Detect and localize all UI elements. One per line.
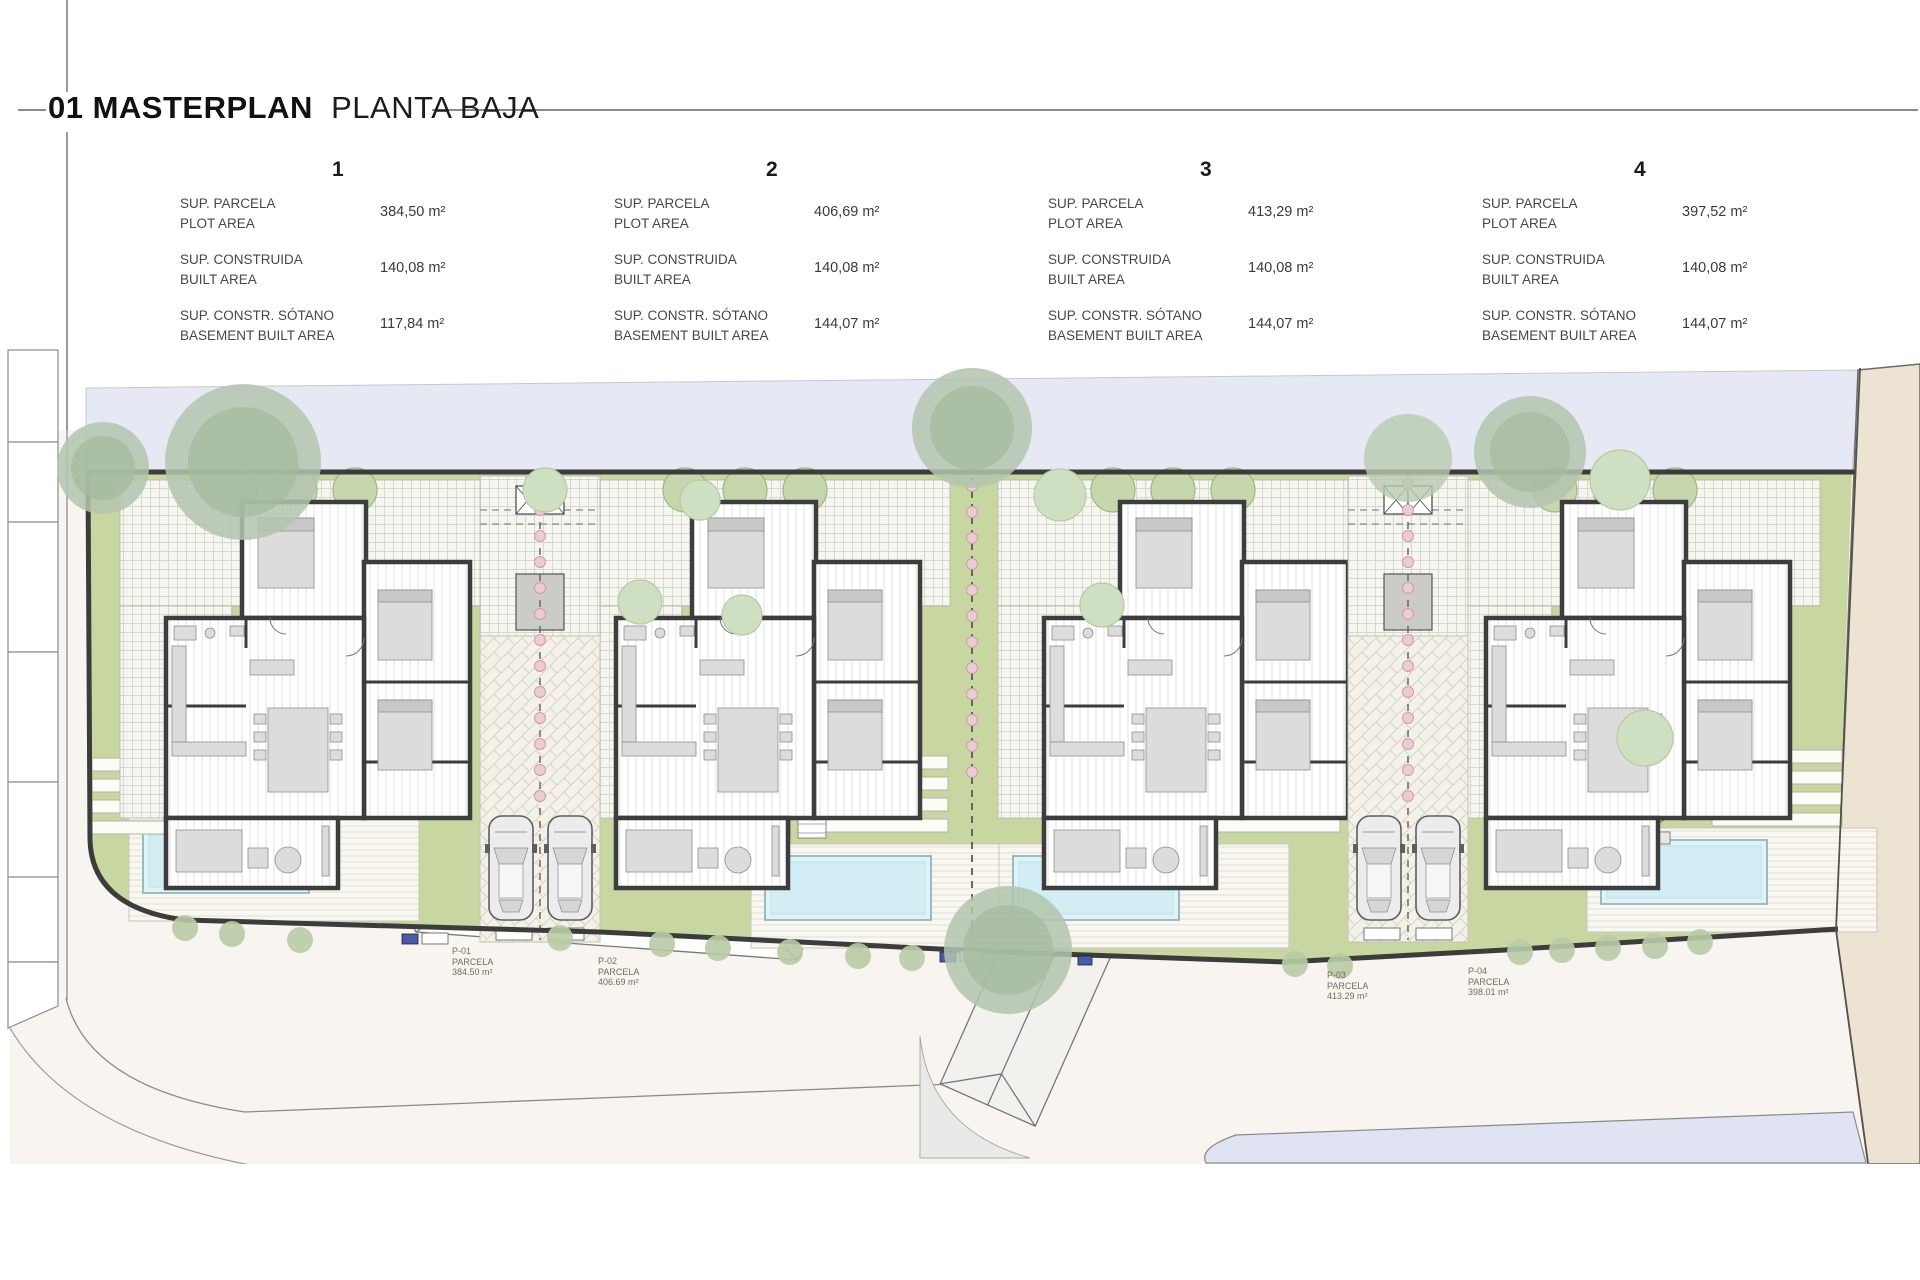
row-value: 140,08 m² xyxy=(814,260,879,276)
row-label-en: BUILT AREA xyxy=(614,270,737,290)
parcel-area: 384.50 m² xyxy=(452,967,493,978)
row-label-es: SUP. CONSTRUIDA xyxy=(1048,250,1171,270)
parcel-area: 406.69 m² xyxy=(598,977,639,988)
row-label-en: BUILT AREA xyxy=(1482,270,1605,290)
title-subtitle: PLANTA BAJA xyxy=(322,90,539,125)
plot-number: 4 xyxy=(1634,158,1646,182)
plot-number: 2 xyxy=(766,158,778,182)
row-label-es: SUP. CONSTRUIDA xyxy=(614,250,737,270)
driveway-plots-1-2 xyxy=(480,470,600,942)
row-label-en: BUILT AREA xyxy=(180,270,303,290)
left-guide-line-top xyxy=(66,0,68,92)
driveway-plots-3-4 xyxy=(1348,470,1468,942)
parcel-tag-2: P-02 PARCELA 406.69 m² xyxy=(598,956,639,988)
title-rule-left xyxy=(18,109,46,111)
parcel-area: 398.01 m² xyxy=(1468,987,1509,998)
parcel-tag-3: P-03 PARCELA 413.29 m² xyxy=(1327,970,1368,1002)
row-label-es: SUP. PARCELA xyxy=(180,194,276,214)
row-label-en: PLOT AREA xyxy=(614,214,710,234)
row-value: 140,08 m² xyxy=(1682,260,1747,276)
row-label-es: SUP. PARCELA xyxy=(614,194,710,214)
row-value: 140,08 m² xyxy=(1248,260,1313,276)
bottom-margin xyxy=(0,1164,1920,1280)
plot-number: 1 xyxy=(332,158,344,182)
row-label-es: SUP. CONSTRUIDA xyxy=(1482,250,1605,270)
row-label-en: BUILT AREA xyxy=(1048,270,1171,290)
plot-row: SUP. PARCELAPLOT AREA 397,52 m² xyxy=(1482,194,1782,244)
row-value: 384,50 m² xyxy=(380,204,445,220)
parcel-tag-4: P-04 PARCELA 398.01 m² xyxy=(1468,966,1509,998)
plot-row: SUP. PARCELAPLOT AREA 406,69 m² xyxy=(614,194,914,244)
parcel-code: P-04 xyxy=(1468,966,1509,977)
row-label-es: SUP. PARCELA xyxy=(1482,194,1578,214)
parcel-name: PARCELA xyxy=(1327,981,1368,992)
plot-row: SUP. CONSTRUIDABUILT AREA 140,08 m² xyxy=(180,250,480,300)
row-value: 397,52 m² xyxy=(1682,204,1747,220)
row-label-en: PLOT AREA xyxy=(1482,214,1578,234)
masterplan-drawing xyxy=(0,310,1920,1280)
title-rule-right xyxy=(432,109,1918,111)
plot-row: SUP. PARCELAPLOT AREA 413,29 m² xyxy=(1048,194,1348,244)
plot-row: SUP. PARCELAPLOT AREA 384,50 m² xyxy=(180,194,480,244)
parcel-code: P-01 xyxy=(452,946,493,957)
plot-row: SUP. CONSTRUIDABUILT AREA 140,08 m² xyxy=(614,250,914,300)
parcel-code: P-03 xyxy=(1327,970,1368,981)
plot-number: 3 xyxy=(1200,158,1212,182)
parcel-name: PARCELA xyxy=(1468,977,1509,988)
plot-row: SUP. CONSTRUIDABUILT AREA 140,08 m² xyxy=(1048,250,1348,300)
row-label-es: SUP. CONSTRUIDA xyxy=(180,250,303,270)
row-value: 140,08 m² xyxy=(380,260,445,276)
title-index: 01 MASTERPLAN xyxy=(48,90,313,125)
plot-row: SUP. CONSTRUIDABUILT AREA 140,08 m² xyxy=(1482,250,1782,300)
row-label-en: PLOT AREA xyxy=(180,214,276,234)
parcel-tag-1: P-01 PARCELA 384.50 m² xyxy=(452,946,493,978)
masterplan-page: { "header": { "index_title": "01 MASTERP… xyxy=(0,0,1920,1280)
row-label-en: PLOT AREA xyxy=(1048,214,1144,234)
neighbour-parcels-left xyxy=(8,350,58,1028)
parcel-area: 413.29 m² xyxy=(1327,991,1368,1002)
row-value: 406,69 m² xyxy=(814,204,879,220)
row-label-es: SUP. PARCELA xyxy=(1048,194,1144,214)
row-value: 413,29 m² xyxy=(1248,204,1313,220)
parcel-name: PARCELA xyxy=(598,967,639,978)
parcel-code: P-02 xyxy=(598,956,639,967)
page-title: 01 MASTERPLAN PLANTA BAJA xyxy=(48,90,539,126)
parcel-name: PARCELA xyxy=(452,957,493,968)
